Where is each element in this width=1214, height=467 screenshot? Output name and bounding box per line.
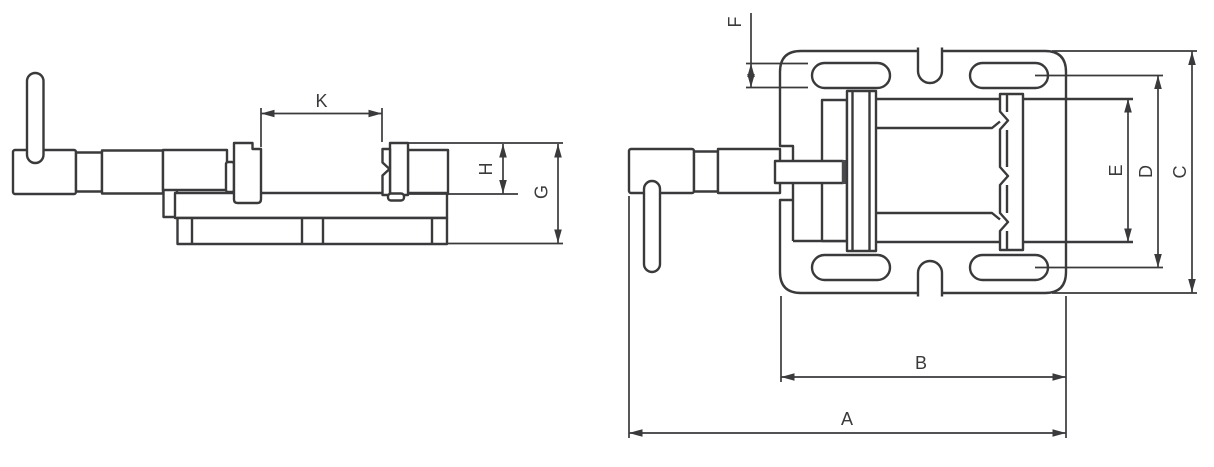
vise-bed bbox=[175, 193, 447, 218]
dimension-label-A: A bbox=[841, 409, 853, 429]
dimension-label-K: K bbox=[315, 91, 327, 111]
dimension-E: E bbox=[1106, 99, 1128, 242]
rear-body bbox=[408, 150, 448, 194]
vise-drawing: K H G bbox=[0, 0, 1214, 467]
dimension-label-B: B bbox=[915, 353, 927, 373]
mounting-slot bbox=[812, 255, 890, 280]
clamp-notch-bottom bbox=[918, 261, 942, 297]
fixed-jaw-face-v-groove bbox=[383, 149, 391, 195]
dimension-label-D: D bbox=[1136, 165, 1156, 178]
base-flange bbox=[178, 218, 448, 244]
crank-handle bbox=[27, 73, 44, 163]
dimension-label-G: G bbox=[532, 185, 552, 199]
fixed-jaw bbox=[390, 143, 408, 195]
movable-jaw bbox=[234, 143, 261, 203]
handle-block bbox=[629, 149, 694, 193]
dimension-label-C: C bbox=[1170, 166, 1190, 179]
spindle-shaft bbox=[718, 149, 780, 193]
top-view: F E D C B bbox=[629, 13, 1197, 438]
base-flange-outline bbox=[178, 218, 448, 244]
lead-screw bbox=[775, 161, 843, 183]
crank-handle bbox=[644, 181, 660, 272]
dimension-label-H: H bbox=[476, 163, 496, 176]
drawing-sheet: K H G bbox=[0, 0, 1214, 467]
dimension-K: K bbox=[261, 91, 382, 147]
spindle-shaft bbox=[102, 151, 163, 194]
dimension-B: B bbox=[781, 296, 1066, 438]
movable-jaw bbox=[847, 91, 876, 251]
spindle-collar bbox=[76, 153, 102, 192]
mounting-slot bbox=[812, 63, 890, 88]
dimension-label-E: E bbox=[1106, 164, 1126, 176]
jaw-foot bbox=[388, 194, 404, 201]
spindle-collar bbox=[694, 152, 718, 192]
side-view: K H G bbox=[13, 73, 563, 244]
clamp-notch-top bbox=[918, 48, 942, 84]
nut-housing bbox=[163, 150, 227, 190]
dimension-label-F: F bbox=[725, 17, 745, 28]
